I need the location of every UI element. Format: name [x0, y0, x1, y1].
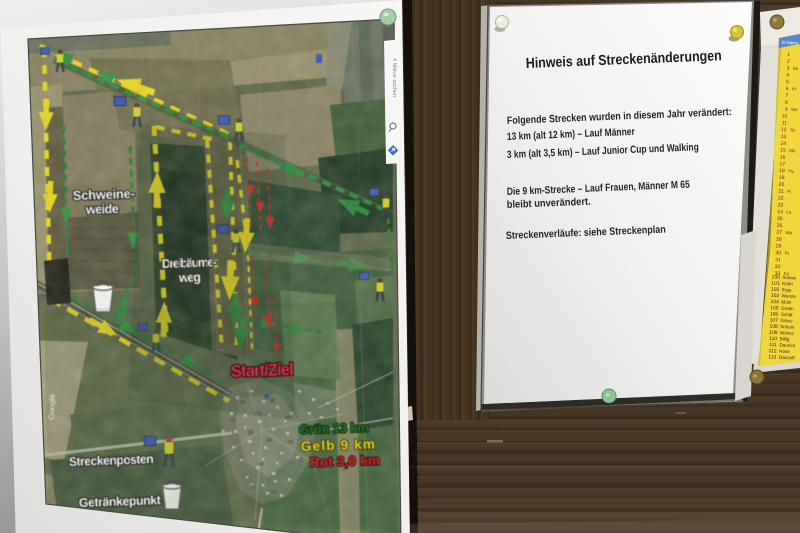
svg-text:113: 113 [768, 354, 776, 360]
svg-text:Mühl: Mühl [781, 299, 791, 304]
svg-text:Grebn: Grebn [781, 306, 794, 312]
svg-text:Höse: Höse [779, 349, 790, 355]
svg-text:5: 5 [786, 79, 789, 85]
svg-text:29: 29 [776, 243, 782, 249]
svg-text:25: 25 [777, 216, 783, 222]
svg-text:21: 21 [778, 189, 784, 195]
svg-text:4 Märze suchen: 4 Märze suchen [391, 58, 397, 97]
svg-text:17: 17 [779, 161, 785, 167]
svg-text:27: 27 [776, 230, 782, 236]
svg-text:Getränkepunkt: Getränkepunkt [79, 493, 162, 510]
svg-text:Daurich: Daurich [779, 342, 795, 348]
svg-text:10: 10 [782, 113, 788, 119]
svg-text:7: 7 [785, 93, 788, 99]
svg-text:22: 22 [778, 195, 784, 201]
svg-text:Schwe: Schwe [782, 275, 796, 281]
svg-text:Wünsc: Wünsc [780, 330, 795, 336]
svg-text:12: 12 [781, 127, 787, 133]
svg-text:Be: Be [793, 66, 799, 71]
svg-text:Fi: Fi [787, 189, 791, 194]
svg-text:Görsc: Görsc [780, 318, 793, 324]
svg-text:Schäf: Schäf [781, 312, 794, 318]
svg-text:6: 6 [786, 86, 789, 92]
svg-text:3: 3 [787, 66, 790, 72]
svg-text:Billig: Billig [780, 336, 790, 341]
svg-text:24: 24 [777, 209, 783, 215]
svg-text:Start/Ziel: Start/Ziel [230, 360, 294, 381]
svg-text:9: 9 [785, 107, 788, 113]
svg-text:19: 19 [779, 175, 785, 181]
svg-text:23: 23 [778, 202, 784, 208]
svg-text:Ri: Ri [784, 251, 788, 256]
svg-text:26: 26 [777, 223, 783, 229]
svg-text:32: 32 [775, 264, 781, 270]
svg-text:2: 2 [787, 59, 790, 65]
svg-text:Sc: Sc [790, 127, 796, 132]
svg-text:Schum: Schum [780, 324, 795, 330]
svg-text:30: 30 [775, 250, 781, 256]
svg-text:18: 18 [779, 168, 785, 174]
svg-text:Gelb 9 km: Gelb 9 km [301, 436, 375, 454]
svg-text:Le: Le [786, 210, 792, 215]
svg-text:Rot 3,0 km: Rot 3,0 km [310, 453, 380, 470]
svg-text:31: 31 [775, 257, 781, 263]
svg-text:We: We [791, 107, 798, 112]
svg-text:St Name: St Name [782, 40, 799, 46]
svg-text:Ma: Ma [789, 148, 796, 153]
svg-text:11: 11 [782, 120, 788, 126]
svg-text:20: 20 [778, 182, 784, 188]
svg-text:Erge: Erge [782, 287, 792, 292]
svg-text:Kühn: Kühn [782, 281, 793, 287]
svg-text:Dreibäume-: Dreibäume- [162, 255, 217, 271]
svg-text:28: 28 [776, 236, 782, 242]
svg-text:Danzeff: Danzeff [779, 355, 796, 361]
svg-text:15: 15 [780, 148, 786, 154]
svg-text:Google: Google [47, 393, 57, 420]
svg-text:Streckenposten: Streckenposten [69, 452, 154, 469]
svg-text:Wenze: Wenze [782, 293, 797, 299]
svg-text:13: 13 [781, 134, 787, 140]
svg-text:Grün 13 km: Grün 13 km [299, 420, 369, 437]
svg-text:4: 4 [786, 72, 789, 78]
svg-text:Hu: Hu [788, 168, 794, 173]
svg-text:1: 1 [787, 52, 790, 58]
svg-text:Kr: Kr [792, 86, 797, 91]
svg-text:weg: weg [178, 270, 201, 285]
svg-text:16: 16 [780, 154, 786, 160]
svg-text:Wa: Wa [785, 230, 792, 235]
svg-text:14: 14 [780, 141, 786, 147]
svg-text:weide: weide [85, 201, 120, 217]
svg-text:8: 8 [785, 100, 788, 106]
